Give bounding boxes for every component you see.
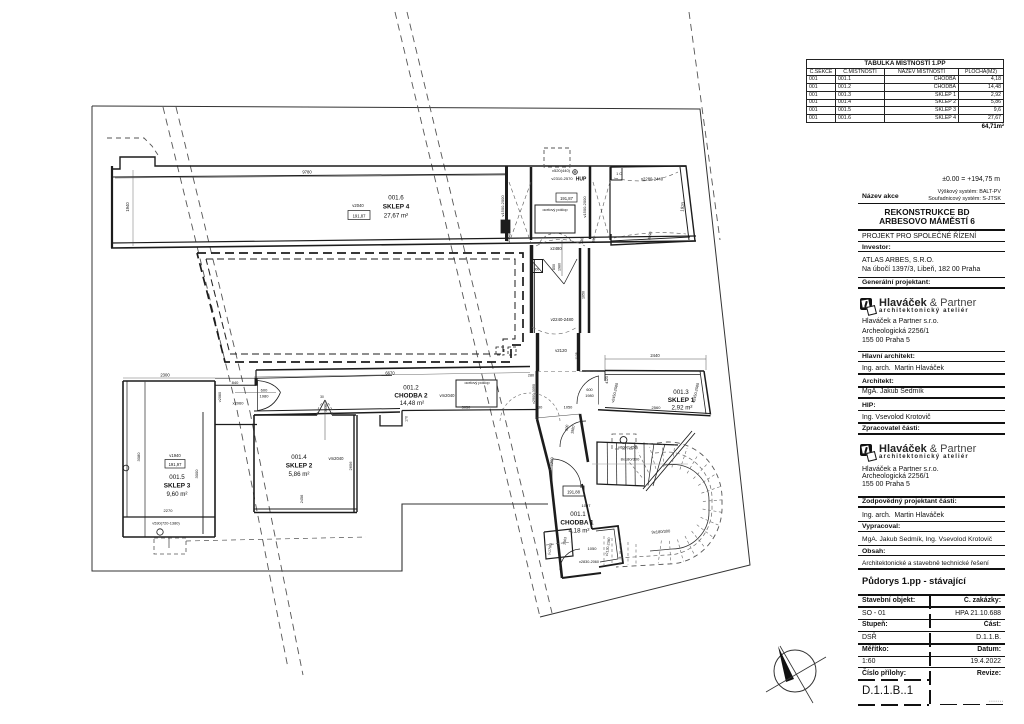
- svg-text:1650: 1650: [582, 291, 586, 299]
- svg-text:2456: 2456: [300, 495, 304, 503]
- svg-text:4123: 4123: [605, 376, 609, 384]
- svg-text:191,97: 191,97: [169, 462, 182, 467]
- svg-text:SKLEP 2: SKLEP 2: [286, 463, 313, 470]
- svg-text:v2120-2340: v2120-2340: [605, 537, 612, 556]
- svg-text:2,92 m²: 2,92 m²: [672, 405, 693, 412]
- svg-text:300: 300: [534, 268, 540, 272]
- svg-text:001.2: 001.2: [403, 385, 419, 392]
- svg-text:(v1760): (v1760): [547, 543, 553, 556]
- svg-text:v2830-2060: v2830-2060: [579, 560, 599, 564]
- svg-text:27,67 m²: 27,67 m²: [384, 213, 408, 220]
- svg-text:SKLEP 1: SKLEP 1: [668, 397, 695, 404]
- svg-text:vm2040: vm2040: [440, 393, 456, 398]
- svg-text:SKLEP 4: SKLEP 4: [383, 204, 410, 211]
- svg-text:191,87: 191,87: [353, 213, 366, 218]
- svg-text:30: 30: [320, 395, 324, 399]
- svg-text:v2450-2580: v2450-2580: [611, 383, 619, 403]
- svg-text:001.4: 001.4: [291, 454, 307, 461]
- svg-text:1980: 1980: [558, 263, 562, 271]
- svg-text:2656: 2656: [348, 461, 353, 471]
- svg-text:1980: 1980: [570, 425, 575, 434]
- svg-text:1250: 1250: [548, 456, 554, 466]
- svg-text:6670: 6670: [385, 371, 395, 376]
- svg-text:191,87: 191,87: [560, 196, 573, 201]
- svg-text:170: 170: [405, 416, 409, 422]
- svg-text:v2310-2570: v2310-2570: [551, 176, 573, 181]
- svg-text:1050: 1050: [564, 405, 573, 410]
- svg-text:v2450-2580: v2450-2580: [692, 383, 700, 403]
- svg-text:1980: 1980: [585, 394, 593, 398]
- svg-text:v2040: v2040: [352, 203, 364, 208]
- svg-text:3000: 3000: [194, 469, 199, 479]
- svg-text:280: 280: [528, 374, 534, 378]
- svg-text:v600(1450): v600(1450): [618, 445, 638, 450]
- svg-text:2560: 2560: [652, 405, 662, 410]
- svg-text:ocelový poklop: ocelový poklop: [542, 208, 567, 212]
- svg-text:2300: 2300: [160, 373, 170, 378]
- svg-text:2063: 2063: [562, 537, 567, 545]
- svg-text:2440: 2440: [650, 353, 660, 358]
- svg-text:1125: 1125: [575, 352, 579, 359]
- svg-text:1097: 1097: [582, 503, 592, 508]
- svg-text:ocelový poklop: ocelový poklop: [464, 381, 489, 385]
- svg-text:530: 530: [536, 405, 543, 410]
- svg-text:191,88: 191,88: [567, 490, 580, 495]
- svg-text:CHODBA 1: CHODBA 1: [560, 520, 594, 527]
- svg-text:9780: 9780: [302, 170, 312, 175]
- svg-text:8x180/300: 8x180/300: [621, 457, 640, 462]
- svg-text:v2240-2480: v2240-2480: [551, 317, 574, 322]
- svg-text:1 C: 1 C: [616, 172, 622, 176]
- svg-text:9x180/300: 9x180/300: [651, 528, 671, 534]
- svg-text:900: 900: [564, 424, 569, 431]
- svg-text:3080: 3080: [136, 452, 141, 462]
- svg-text:1940: 1940: [125, 202, 130, 212]
- svg-text:600: 600: [586, 388, 592, 392]
- svg-text:1050: 1050: [588, 546, 598, 551]
- svg-text:v2900-3090: v2900-3090: [532, 384, 536, 404]
- svg-text:850: 850: [552, 264, 556, 270]
- svg-text:3630: 3630: [324, 404, 328, 412]
- svg-text:x2060: x2060: [233, 401, 245, 406]
- svg-text:v2120: v2120: [555, 348, 567, 353]
- svg-text:001.6: 001.6: [388, 195, 404, 202]
- svg-text:v520(440): v520(440): [552, 168, 571, 173]
- svg-text:SKLEP 3: SKLEP 3: [164, 483, 191, 490]
- svg-text:2270: 2270: [164, 508, 174, 513]
- svg-text:v1500-2000: v1500-2000: [500, 195, 505, 217]
- svg-text:x2280-2440: x2280-2440: [641, 177, 664, 182]
- svg-text:001.5: 001.5: [169, 474, 185, 481]
- svg-text:001.1: 001.1: [570, 511, 586, 518]
- svg-text:001.3: 001.3: [673, 389, 689, 396]
- svg-text:CHODBA 2: CHODBA 2: [394, 393, 428, 400]
- svg-text:1920: 1920: [679, 201, 685, 212]
- svg-text:x2480: x2480: [550, 246, 562, 251]
- svg-text:1980: 1980: [260, 394, 270, 399]
- svg-text:9,60 m²: 9,60 m²: [167, 491, 188, 498]
- svg-text:840: 840: [232, 380, 239, 385]
- svg-text:v2060: v2060: [218, 392, 222, 402]
- svg-text:3096: 3096: [506, 233, 511, 242]
- svg-text:v1940: v1940: [169, 453, 181, 458]
- svg-text:vm2040: vm2040: [329, 456, 345, 461]
- svg-text:14,48 m²: 14,48 m²: [400, 400, 424, 407]
- svg-text:336: 336: [579, 237, 584, 244]
- svg-text:5,86 m²: 5,86 m²: [289, 471, 310, 478]
- svg-text:3050: 3050: [462, 405, 471, 410]
- svg-text:600: 600: [261, 388, 268, 393]
- svg-text:v530(720-1380): v530(720-1380): [152, 521, 180, 526]
- svg-text:HUP: HUP: [576, 177, 587, 183]
- svg-text:v1500-2000: v1500-2000: [582, 196, 587, 218]
